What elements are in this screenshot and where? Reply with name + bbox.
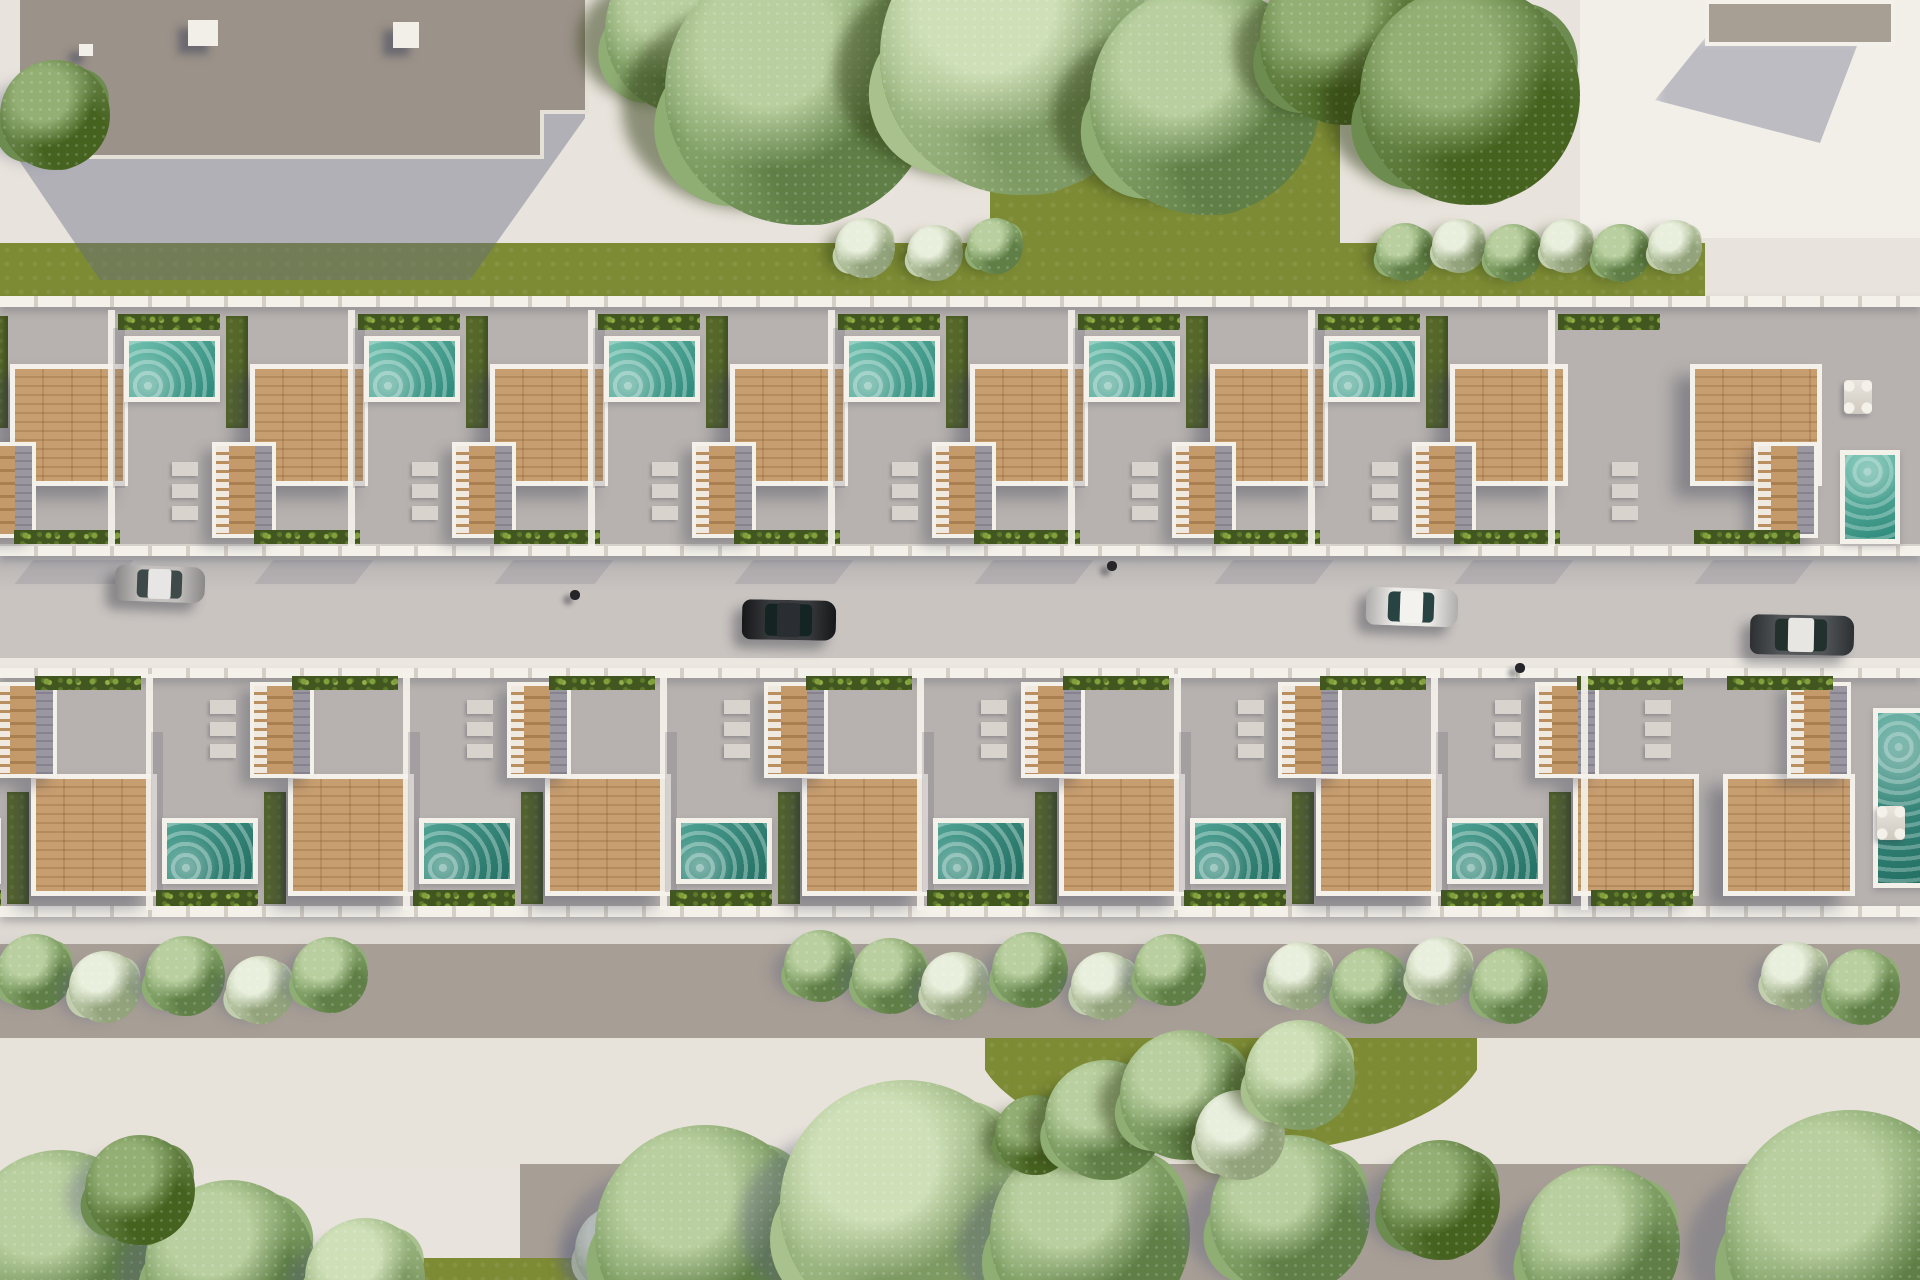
fence-back-top-row — [0, 296, 1920, 307]
stepping-stone-0 — [412, 462, 438, 476]
front-hedge — [974, 530, 1080, 544]
bush-texture — [1648, 220, 1702, 274]
stepping-stone-0 — [981, 744, 1007, 758]
back-hedge — [156, 890, 258, 906]
car-roof — [148, 568, 172, 599]
stepping-stone-2 — [1495, 700, 1521, 714]
tree — [1360, 0, 1580, 205]
back-hedge — [838, 314, 940, 330]
stairs-ladder — [1791, 686, 1804, 774]
tree — [305, 1218, 425, 1280]
stairs-wood — [949, 446, 975, 534]
stairs-wood — [1552, 686, 1578, 774]
stepping-stone-1 — [652, 484, 678, 498]
stairs-ladder — [1539, 686, 1552, 774]
patio-table — [1877, 806, 1905, 840]
bush-texture — [1332, 948, 1408, 1024]
stairs-steps — [735, 446, 752, 534]
stairs-wood — [781, 686, 807, 774]
garden-strip — [1035, 792, 1057, 904]
stepping-stone-1 — [467, 722, 493, 736]
pool-water — [938, 823, 1024, 879]
bush — [292, 937, 368, 1013]
stepping-stone-1 — [1612, 484, 1638, 498]
pool — [676, 818, 772, 884]
villa-street-shadow — [495, 560, 614, 584]
car-roof — [1788, 618, 1815, 652]
tree-texture — [85, 1135, 195, 1245]
stairs-annex — [1172, 442, 1236, 538]
roof-terrace — [1316, 774, 1442, 896]
villa-street-shadow — [1215, 560, 1334, 584]
stairs-steps — [293, 686, 310, 774]
bush — [835, 218, 895, 278]
tree-texture — [305, 1218, 425, 1280]
stairs-steps — [495, 446, 512, 534]
tree — [1245, 1020, 1355, 1130]
bush-texture — [907, 225, 963, 281]
pool-water — [1329, 341, 1415, 397]
stairs-steps — [975, 446, 992, 534]
front-hedge — [1727, 676, 1833, 690]
stepping-stone-2 — [467, 700, 493, 714]
rooftop-unit-1 — [393, 22, 419, 48]
stepping-stone-1 — [1132, 484, 1158, 498]
stairs-ladder — [1758, 446, 1771, 534]
small-building-top-right — [1705, 0, 1895, 46]
stepping-stone-0 — [724, 744, 750, 758]
stairs-annex — [932, 442, 996, 538]
villa-street-shadow — [1455, 560, 1574, 584]
stepping-stone-2 — [1132, 506, 1158, 520]
pool-water — [609, 341, 695, 397]
garden-strip — [946, 316, 968, 428]
bush-texture — [69, 951, 141, 1023]
stepping-stone-2 — [412, 506, 438, 520]
pool — [364, 336, 460, 402]
stairs-annex — [1754, 442, 1818, 538]
stepping-stone-0 — [1372, 462, 1398, 476]
front-hedge — [1320, 676, 1426, 690]
stairs-wood — [1038, 686, 1064, 774]
stairs-wood — [229, 446, 255, 534]
garden-strip — [1426, 316, 1448, 428]
stepping-stone-0 — [1612, 462, 1638, 476]
front-hedge — [35, 676, 141, 690]
plot-wall — [1548, 310, 1555, 546]
front-hedge — [1694, 530, 1800, 544]
stepping-stone-2 — [981, 700, 1007, 714]
back-hedge — [598, 314, 700, 330]
stepping-stone-0 — [1495, 744, 1521, 758]
car-pickup — [1750, 614, 1855, 656]
bush-texture — [1824, 949, 1900, 1025]
stairs-annex — [692, 442, 756, 538]
stairs-ladder — [936, 446, 949, 534]
back-hedge — [1078, 314, 1180, 330]
villa-street-shadow — [975, 560, 1094, 584]
garden-strip — [706, 316, 728, 428]
roof-terrace — [1723, 774, 1855, 896]
bush-texture — [145, 936, 225, 1016]
pool — [844, 336, 940, 402]
pedestrian-0 — [570, 590, 580, 600]
stairs-wood — [524, 686, 550, 774]
stairs-steps — [807, 686, 824, 774]
stepping-stone-2 — [1612, 506, 1638, 520]
stepping-stone-1 — [412, 484, 438, 498]
stairs-annex — [250, 682, 314, 778]
pool-water — [849, 341, 935, 397]
stepping-stone-2 — [724, 700, 750, 714]
garden-strip — [466, 316, 488, 428]
bush-texture — [967, 218, 1023, 274]
roof-terrace — [1059, 774, 1185, 896]
side-pool — [1840, 450, 1900, 544]
stairs-steps — [1830, 686, 1847, 774]
front-hedge — [292, 676, 398, 690]
stairs-wood — [1804, 686, 1830, 774]
garden-strip — [264, 792, 286, 904]
villa-street-shadow — [735, 560, 854, 584]
stairs-steps — [255, 446, 272, 534]
pool — [419, 818, 515, 884]
garden-strip — [1186, 316, 1208, 428]
stairs-steps — [1321, 686, 1338, 774]
bush — [1472, 948, 1548, 1024]
stepping-stone-2 — [652, 506, 678, 520]
stairs-steps — [15, 446, 32, 534]
stairs-ladder — [254, 686, 267, 774]
stepping-stone-0 — [172, 462, 198, 476]
back-hedge — [1441, 890, 1543, 906]
pool — [1084, 336, 1180, 402]
villa-street-shadow — [1695, 560, 1814, 584]
tree-texture — [0, 60, 110, 170]
pool — [604, 336, 700, 402]
bush — [967, 218, 1023, 274]
tree — [1380, 1140, 1500, 1260]
side-pool — [1873, 708, 1920, 888]
bush-texture — [1472, 948, 1548, 1024]
fence-back-bottom-row — [0, 906, 1920, 917]
roof-terrace — [288, 774, 414, 896]
front-hedge — [806, 676, 912, 690]
stairs-ladder — [511, 686, 524, 774]
roof-terrace — [1573, 774, 1699, 896]
pool-water — [1878, 713, 1920, 883]
stairs-annex — [1278, 682, 1342, 778]
stairs-steps — [1215, 446, 1232, 534]
front-hedge — [549, 676, 655, 690]
stepping-stone-1 — [724, 722, 750, 736]
stairs-steps — [1797, 446, 1814, 534]
villa-street-shadow — [255, 560, 374, 584]
tree — [85, 1135, 195, 1245]
pool — [0, 818, 1, 884]
roof-terrace — [802, 774, 928, 896]
stairs-ladder — [1282, 686, 1295, 774]
stairs-annex — [0, 682, 57, 778]
front-hedge — [14, 530, 120, 544]
stairs-annex — [1535, 682, 1599, 778]
pool — [933, 818, 1029, 884]
stairs-annex — [1787, 682, 1851, 778]
plot-wall — [1581, 674, 1588, 910]
car-white — [1365, 586, 1458, 627]
garden-strip — [0, 316, 8, 428]
bush — [145, 936, 225, 1016]
stepping-stone-0 — [652, 462, 678, 476]
stairs-annex — [1412, 442, 1476, 538]
stairs-steps — [1455, 446, 1472, 534]
stairs-wood — [709, 446, 735, 534]
stairs-wood — [1429, 446, 1455, 534]
stepping-stone-1 — [1238, 722, 1264, 736]
pool-water — [167, 823, 253, 879]
pool — [1190, 818, 1286, 884]
stairs-annex — [452, 442, 516, 538]
back-hedge — [0, 890, 1, 906]
tree-texture — [1245, 1020, 1355, 1130]
front-hedge — [1214, 530, 1320, 544]
stepping-stone-0 — [892, 462, 918, 476]
stairs-wood — [469, 446, 495, 534]
garden-strip — [1292, 792, 1314, 904]
pool-water — [1452, 823, 1538, 879]
back-hedge — [1184, 890, 1286, 906]
rooftop-unit-0 — [188, 20, 218, 46]
car-roof — [776, 603, 800, 637]
garden-strip — [7, 792, 29, 904]
pool-water — [129, 341, 215, 397]
stepping-stone-0 — [1132, 462, 1158, 476]
bush — [69, 951, 141, 1023]
stairs-steps — [36, 686, 53, 774]
rooftop-unit-2 — [79, 44, 93, 56]
tree — [0, 60, 110, 170]
stepping-stone-1 — [210, 722, 236, 736]
garden-strip — [1549, 792, 1571, 904]
car-black — [742, 599, 837, 641]
fence-front-top-row — [0, 546, 1920, 556]
roof-terrace — [31, 774, 157, 896]
patio-table — [1844, 380, 1872, 414]
bush — [992, 932, 1068, 1008]
stairs-steps — [1064, 686, 1081, 774]
pool-water — [1845, 455, 1895, 539]
path-below-villas — [0, 917, 1920, 944]
stairs-ladder — [1176, 446, 1189, 534]
bush-texture — [1134, 934, 1206, 1006]
back-hedge — [1318, 314, 1420, 330]
car-silver — [114, 564, 205, 603]
stepping-stone-1 — [892, 484, 918, 498]
stairs-wood — [0, 446, 15, 534]
back-hedge — [670, 890, 772, 906]
tree-texture — [1380, 1140, 1500, 1260]
bush — [907, 225, 963, 281]
pedestrian-1 — [1107, 561, 1117, 571]
pool-water — [1089, 341, 1175, 397]
stepping-stone-1 — [1495, 722, 1521, 736]
pool-water — [1195, 823, 1281, 879]
pool — [124, 336, 220, 402]
stairs-ladder — [216, 446, 229, 534]
stepping-stone-2 — [1645, 700, 1671, 714]
back-hedge — [927, 890, 1029, 906]
back-hedge — [118, 314, 220, 330]
front-hedge — [1454, 530, 1560, 544]
stairs-annex — [507, 682, 571, 778]
stairs-annex — [1021, 682, 1085, 778]
back-hedge — [1558, 314, 1660, 330]
stairs-ladder — [456, 446, 469, 534]
stepping-stone-1 — [981, 722, 1007, 736]
garden-strip — [778, 792, 800, 904]
stairs-wood — [10, 686, 36, 774]
pool-water — [369, 341, 455, 397]
stairs-ladder — [696, 446, 709, 534]
stairs-ladder — [768, 686, 781, 774]
stairs-wood — [1189, 446, 1215, 534]
stairs-ladder — [1416, 446, 1429, 534]
stepping-stone-2 — [210, 700, 236, 714]
garden-strip — [521, 792, 543, 904]
bush — [1134, 934, 1206, 1006]
pool — [1324, 336, 1420, 402]
stairs-annex — [764, 682, 828, 778]
stepping-stone-0 — [1238, 744, 1264, 758]
stepping-stone-1 — [1372, 484, 1398, 498]
stepping-stone-2 — [1372, 506, 1398, 520]
car-roof — [1399, 591, 1423, 624]
stairs-annex — [212, 442, 276, 538]
bush-texture — [292, 937, 368, 1013]
stepping-stone-0 — [467, 744, 493, 758]
stairs-wood — [1771, 446, 1797, 534]
stepping-stone-1 — [1645, 722, 1671, 736]
front-hedge — [494, 530, 600, 544]
front-hedge — [734, 530, 840, 544]
bush-texture — [921, 952, 989, 1020]
back-hedge — [1591, 890, 1693, 906]
pedestrian-2 — [1515, 663, 1525, 673]
stepping-stone-2 — [172, 506, 198, 520]
pool — [162, 818, 258, 884]
stairs-steps — [550, 686, 567, 774]
bush-texture — [992, 932, 1068, 1008]
bush — [1332, 948, 1408, 1024]
stairs-wood — [1295, 686, 1321, 774]
back-hedge — [358, 314, 460, 330]
aerial-site-plan-render: Aerial 3D architectural rendering: two r… — [0, 0, 1920, 1280]
stepping-stone-2 — [892, 506, 918, 520]
stepping-stone-2 — [1238, 700, 1264, 714]
stairs-ladder — [1025, 686, 1038, 774]
stepping-stone-0 — [210, 744, 236, 758]
front-hedge — [254, 530, 360, 544]
back-hedge — [413, 890, 515, 906]
pool-water — [424, 823, 510, 879]
stepping-stone-1 — [172, 484, 198, 498]
stairs-wood — [267, 686, 293, 774]
tree-texture — [1360, 0, 1580, 205]
pool-water — [681, 823, 767, 879]
bush — [921, 952, 989, 1020]
pool — [1447, 818, 1543, 884]
front-hedge — [1063, 676, 1169, 690]
stepping-stone-0 — [1645, 744, 1671, 758]
bush-texture — [835, 218, 895, 278]
garden-strip — [226, 316, 248, 428]
stairs-annex — [0, 442, 36, 538]
bush — [1824, 949, 1900, 1025]
stairs-ladder — [0, 686, 10, 774]
roof-terrace — [545, 774, 671, 896]
bush — [1648, 220, 1702, 274]
front-hedge — [1577, 676, 1683, 690]
